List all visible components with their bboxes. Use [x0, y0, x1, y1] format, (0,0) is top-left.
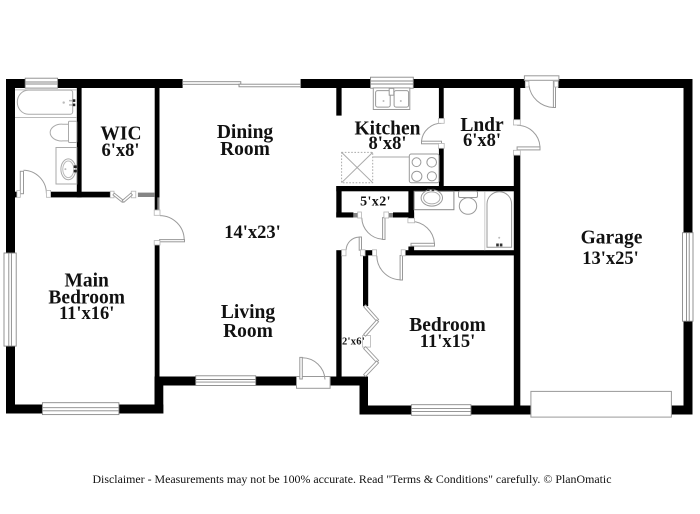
svg-text:2'x6': 2'x6': [342, 337, 365, 348]
svg-text:Disclaimer - Measurements may: Disclaimer - Measurements may not be 100…: [92, 472, 611, 486]
svg-text:6'x8': 6'x8': [101, 141, 139, 161]
svg-text:11'x15': 11'x15': [420, 332, 476, 352]
svg-text:8'x8': 8'x8': [368, 134, 406, 154]
svg-text:5'x2': 5'x2': [360, 194, 391, 209]
svg-text:Room: Room: [223, 321, 273, 342]
svg-text:6'x8': 6'x8': [463, 131, 501, 151]
svg-text:11'x16': 11'x16': [59, 304, 115, 324]
svg-text:Room: Room: [220, 139, 270, 160]
svg-text:14'x23': 14'x23': [224, 223, 281, 243]
svg-text:Garage: Garage: [581, 227, 643, 248]
svg-text:13'x25': 13'x25': [582, 249, 639, 269]
